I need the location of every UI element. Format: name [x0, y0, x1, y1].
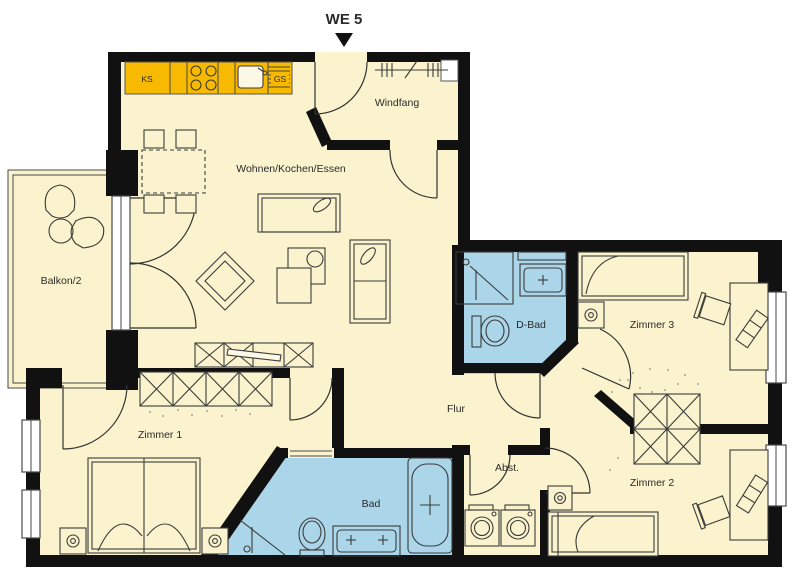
fridge-label: KS — [141, 74, 153, 84]
room1-window-lower — [22, 490, 40, 538]
room1-bed-icon — [88, 458, 200, 553]
unit-title: WE 5 — [326, 11, 363, 28]
room3-bed-icon — [578, 252, 688, 300]
room1-label: Zimmer 1 — [138, 429, 182, 441]
balcony-door-window — [112, 196, 130, 330]
room2-bed-icon — [548, 512, 658, 556]
room1-wardrobe-icon — [140, 372, 272, 406]
windfang-label: Windfang — [375, 97, 420, 109]
kitchen-counter: KS GS — [125, 62, 292, 94]
storage-label: Abst. — [495, 462, 519, 474]
room2-nightstand-icon — [548, 486, 572, 510]
room2-wardrobe-icon — [634, 394, 700, 464]
room1-nightstand-right-icon — [202, 528, 228, 554]
room1-window-upper — [22, 420, 40, 472]
floorplan-drawing: KS GS — [0, 0, 800, 584]
hall-label: Flur — [447, 403, 466, 415]
room2-window — [766, 445, 786, 506]
entrance-arrow-icon — [335, 33, 353, 47]
bath-label: Bad — [362, 498, 381, 510]
floorplan-page: KS GS — [0, 0, 800, 584]
sofa2-icon — [350, 240, 390, 323]
balcony-label: Balkon/2 — [41, 275, 82, 287]
room2-label: Zimmer 2 — [630, 477, 674, 489]
room3-window — [766, 292, 786, 383]
dishwasher-label: GS — [274, 74, 287, 84]
room3-label: Zimmer 3 — [630, 319, 674, 331]
sofa-icon — [258, 194, 340, 232]
room1-nightstand-left-icon — [60, 528, 86, 554]
bath-sliding-door — [288, 448, 334, 458]
tv-lowboard-icon — [195, 343, 313, 367]
living-label: Wohnen/Kochen/Essen — [236, 163, 346, 175]
shower-bath-label: D-Bad — [516, 319, 546, 331]
room3-nightstand-icon — [578, 302, 604, 328]
sink-icon — [238, 66, 267, 88]
